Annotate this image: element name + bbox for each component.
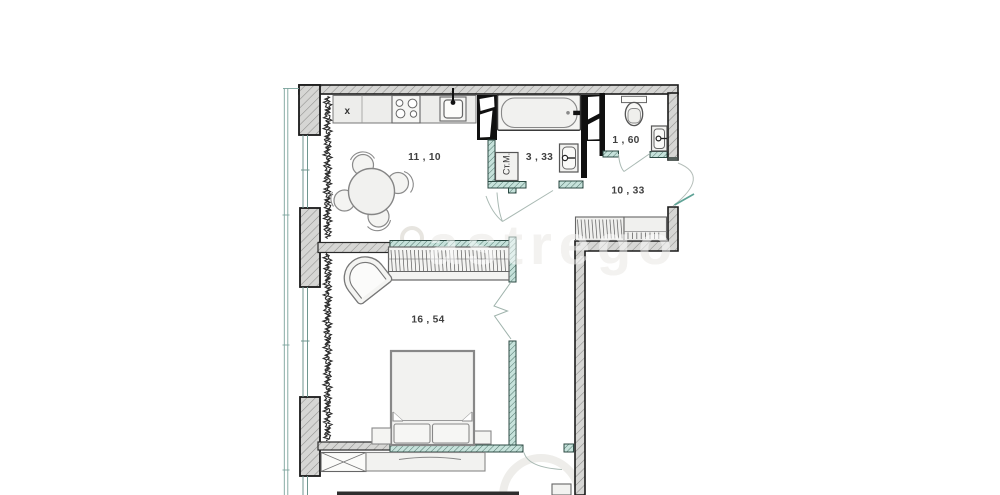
svg-text:16 , 54: 16 , 54 — [411, 315, 444, 326]
svg-text:3 , 33: 3 , 33 — [526, 152, 553, 163]
svg-text:x: x — [345, 106, 351, 117]
svg-text:11 , 10: 11 , 10 — [408, 152, 441, 163]
svg-text:1 , 60: 1 , 60 — [612, 135, 639, 146]
svg-text:10 , 33: 10 , 33 — [611, 186, 644, 197]
svg-text:astrego: astrego — [428, 213, 679, 276]
svg-text:Ст.М.: Ст.М. — [502, 153, 512, 175]
